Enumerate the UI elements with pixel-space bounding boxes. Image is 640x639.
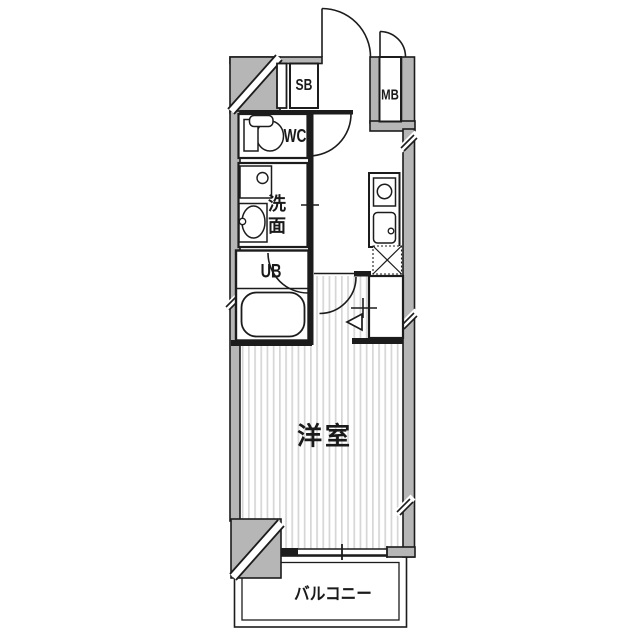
washbasin-icon [239,204,267,243]
bathtub-icon [242,293,305,337]
label-balcony: バルコニー [294,586,372,603]
floor-plan: SB MB WC 洗面 UB 洋室 バルコニー [0,0,640,639]
meter-box-door-swing [380,32,406,58]
entry-side-cabinet [277,64,287,109]
label-water-closet: WC [284,127,307,145]
label-unit-bath: UB [261,263,282,282]
refrigerator-space-icon [373,246,402,274]
window-side-wall-stub [281,548,298,556]
floor-plan-drawing [0,0,640,639]
sink-icon [374,213,396,244]
entrance-door-swing [322,9,371,58]
label-washroom: 洗面 [267,194,285,238]
label-meter-box: MB [381,88,399,103]
stove-icon [374,178,396,206]
label-western-room: 洋室 [297,425,353,450]
label-shoe-box: SB [296,78,313,94]
closet-box [369,276,403,338]
